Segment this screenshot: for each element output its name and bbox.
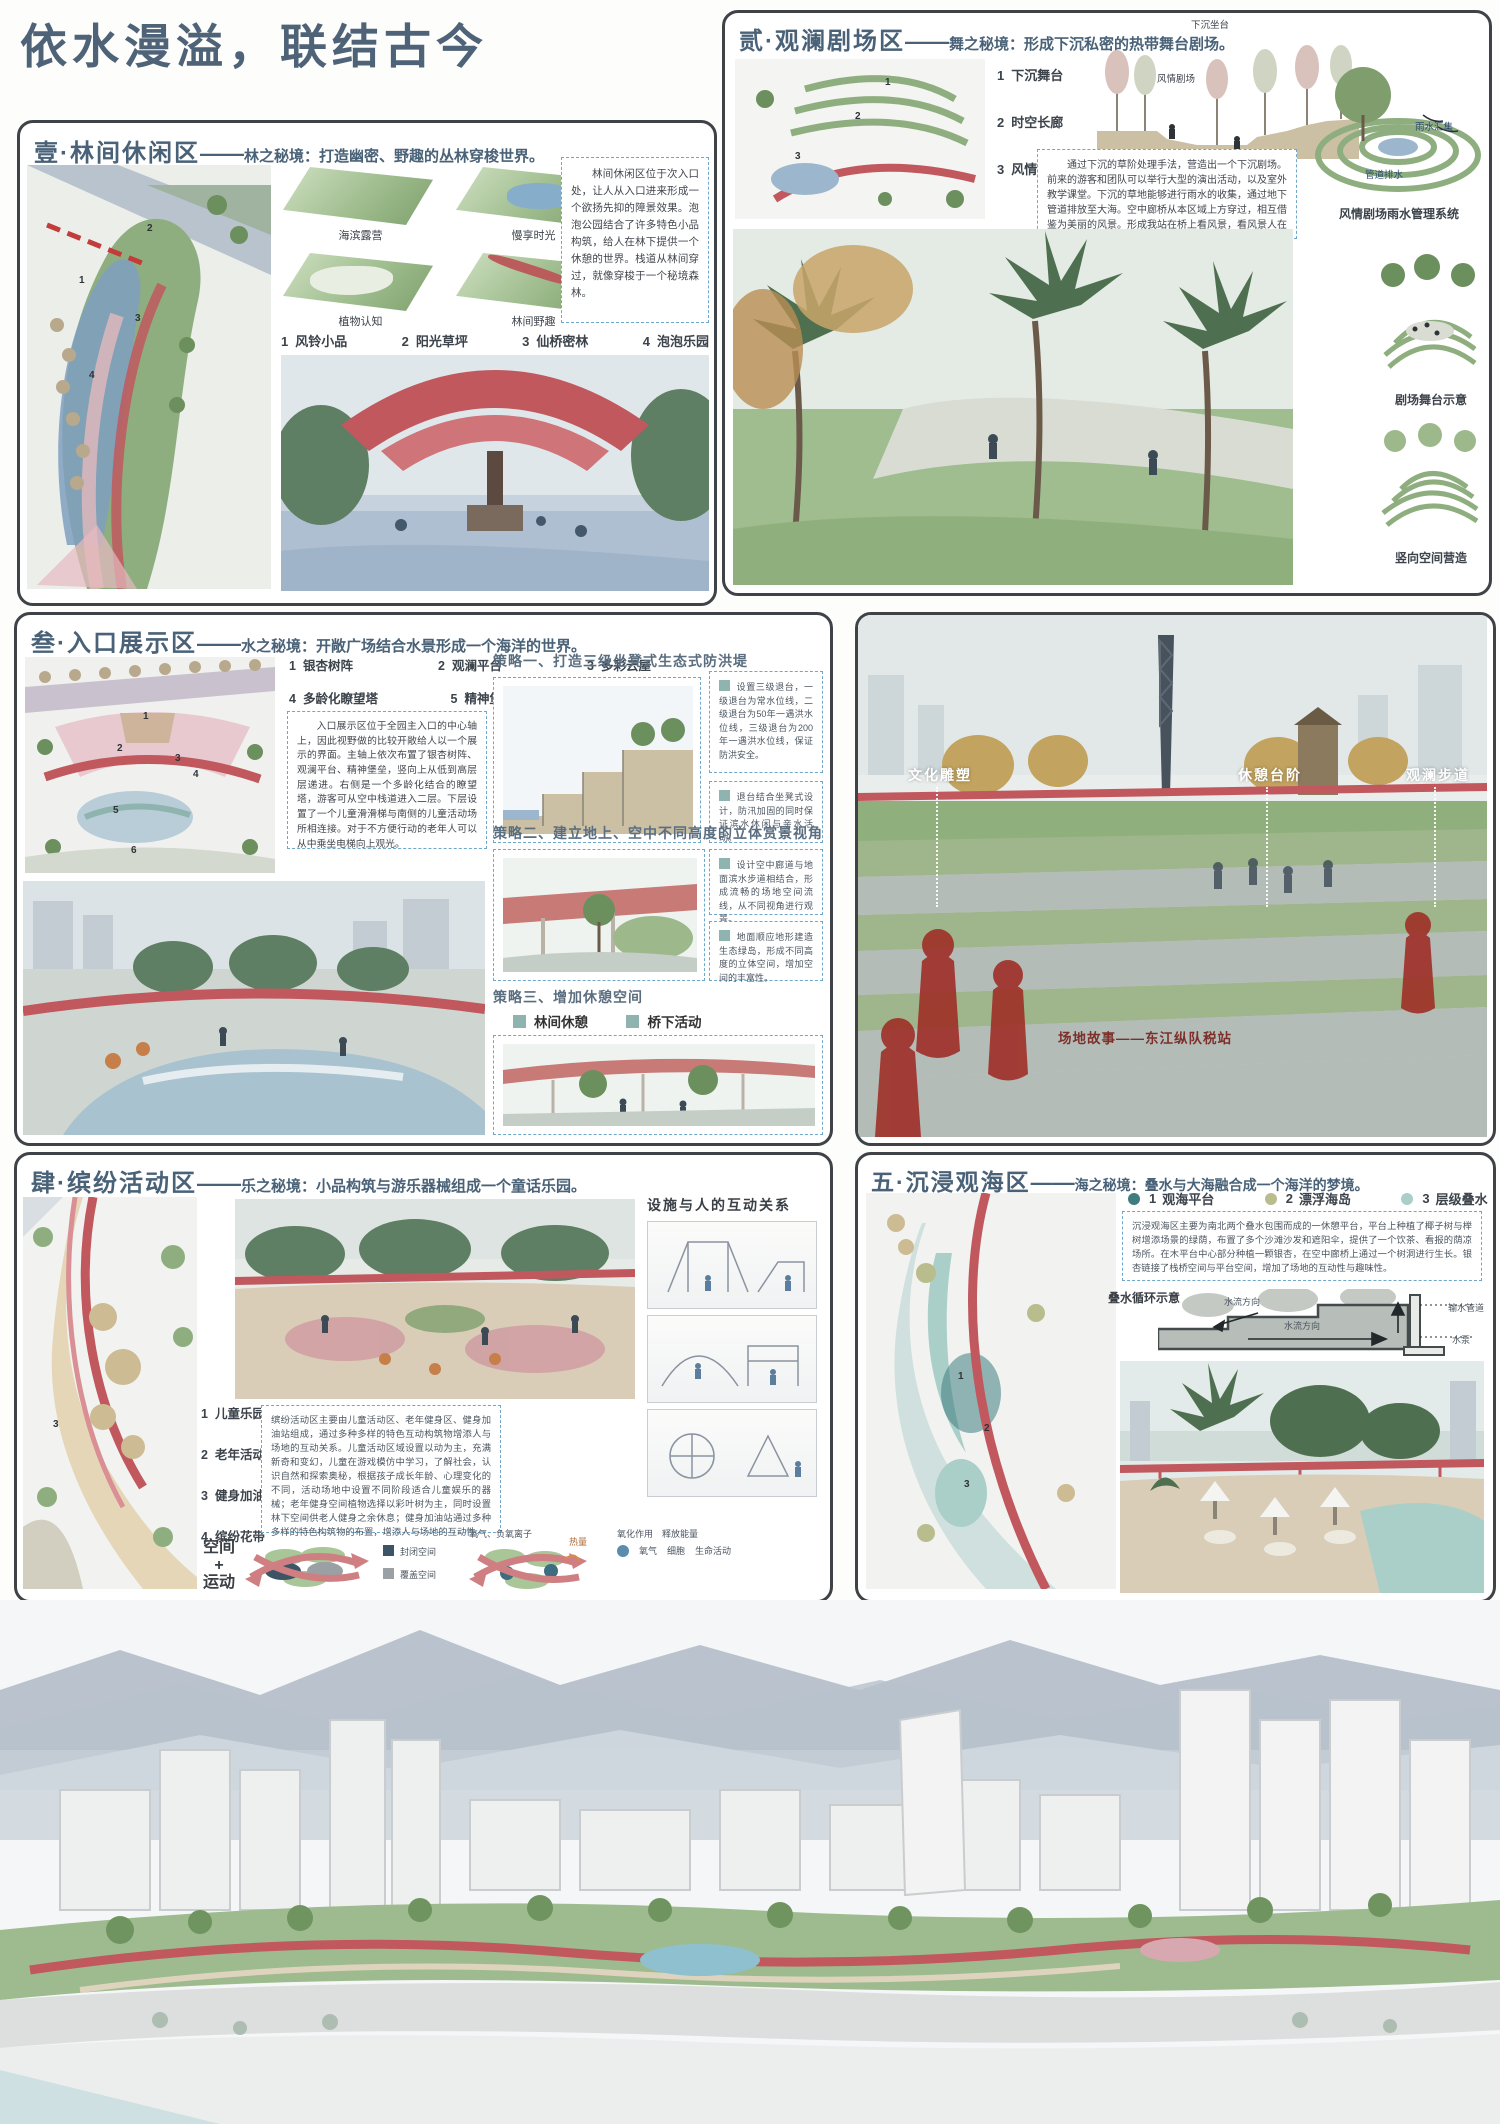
panel6-zone-title: 五·沉浸观海区	[871, 1169, 1031, 1195]
panel1-zone-title: 壹·林间休闲区	[34, 140, 200, 167]
panel2-plan: 1 2 3	[735, 59, 985, 219]
plan1-marker: 2	[147, 223, 153, 234]
thumb-illustration	[283, 167, 433, 225]
legend-dot-icon	[1128, 1193, 1140, 1205]
panel2-zone-title: 贰·观澜剧场区	[739, 28, 905, 55]
label-culture-sculpture: 文化雕塑	[908, 765, 972, 785]
flow-direction-label-2: 水流方向	[1284, 1319, 1320, 1332]
section-label-sunken-seat: 下沉坐台	[1191, 17, 1229, 31]
flow-direction-label-1: 水流方向	[1224, 1295, 1260, 1308]
panel-forest-leisure: 壹·林间休闲区——林之秘境：打造幽密、野趣的丛林穿梭世界。 1	[17, 120, 717, 606]
panel6-description-box: 沉浸观海区主要为南北两个叠水包围而成的一休憩平台，平台上种植了椰子树与榉树增添场…	[1122, 1211, 1482, 1281]
plan5-marker: 3	[53, 1419, 59, 1430]
tag-square-icon	[513, 1015, 526, 1028]
board-title: 依水漫溢，联结古今	[20, 8, 488, 77]
panel2-plan-drawing	[735, 59, 985, 219]
panel5-plan-drawing	[23, 1197, 197, 1589]
site-story-label: 场地故事——东江纵队税站	[1058, 1027, 1232, 1047]
equipment-sketch-1	[647, 1221, 817, 1309]
panel-theater-zone: 贰·观澜剧场区——舞之秘境：形成下沉私密的热带舞台剧场。 1 2 3 1下沉舞台…	[722, 10, 1492, 596]
label-rest-steps: 休憩台阶	[1238, 765, 1302, 785]
strategy2-note-1: 设计空中廊道与地面滨水步道相结合，形成流畅的场地空间流线，从不同视角进行观景。	[709, 849, 823, 915]
leader-line	[1434, 787, 1436, 907]
oxygen-ion-label: 氧气、负氧离子	[469, 1527, 532, 1540]
rest-space-render	[503, 1044, 815, 1126]
water-pump-label: 水泵	[1452, 1333, 1470, 1346]
tag-forest-rest: 林间休憩	[513, 1011, 588, 1031]
legend-dot-icon	[1401, 1193, 1413, 1205]
panel3-main-render	[23, 881, 485, 1135]
strategy1-note-1: 设置三级退台，一级退台为常水位线，二级退台为50年一遇洪水位线，三级退台为200…	[709, 671, 823, 773]
panel3-zone-title: 叁·入口展示区	[31, 630, 197, 657]
panel5-description-box: 缤纷活动区主要由儿童活动区、老年健身区、健身加油站组成，通过多种多样的特色互动构…	[261, 1405, 501, 1533]
panel1-pergola-photo	[281, 355, 709, 591]
panel-entrance-display: 叁·入口展示区——水之秘境：开敞广场结合水景形成一个海洋的世界。 1 2 3 4…	[14, 612, 833, 1146]
thumb-plant-cognition: 植物认知	[279, 249, 442, 329]
thumb-illustration	[283, 253, 433, 311]
panel2-terrace-image	[1375, 417, 1485, 543]
covered-space-swatch	[383, 1568, 394, 1579]
elevated-walk-render	[503, 858, 697, 972]
plan1-marker: 1	[79, 275, 85, 286]
panel5-subtitle: 乐之秘境：小品构筑与游乐器械组成一个童话乐园。	[241, 1178, 586, 1195]
water-pipe-label: 输水管道	[1448, 1301, 1484, 1314]
panel5-activity-photo	[235, 1199, 635, 1399]
site-panorama	[0, 1600, 1500, 2124]
legend-tiered-falls: 3层级叠水	[1401, 1189, 1487, 1208]
heritage-scene-render	[858, 615, 1487, 1137]
tag-under-bridge: 桥下活动	[626, 1011, 701, 1031]
panorama-render	[0, 1600, 1500, 2124]
panel3-plan: 1 2 3 4 5 6	[25, 657, 275, 873]
equipment-sketch-3	[647, 1409, 817, 1497]
rain-label-drain: 管道排水	[1365, 167, 1403, 181]
activity-plaza-render	[235, 1199, 635, 1399]
closed-space-swatch	[383, 1545, 394, 1556]
panel1-master-plan: 1 2 3 4	[27, 165, 271, 589]
panel6-legend: 1观海平台 2漂浮海岛 3层级叠水	[1128, 1189, 1488, 1210]
presentation-board: 依水漫溢，联结古今 壹·林间休闲区——林之秘境：打造幽密、野趣的丛林穿梭世界。	[0, 0, 1500, 2124]
label-viewing-walk: 观澜步道	[1406, 765, 1470, 785]
panel6-plan: 1 2 3	[866, 1193, 1116, 1589]
plan1-marker: 3	[135, 313, 141, 324]
strategy3-title: 策略三、增加休憩空间	[493, 987, 643, 1007]
caption-stage: 剧场舞台示意	[1361, 391, 1500, 408]
oxygen-dot-icon	[617, 1545, 629, 1557]
strategy2-note-2: 地面顺应地形建造生态绿岛，形成不同高度的立体空间，增加空间的丰富性。	[709, 921, 823, 981]
space-motion-ribbon-1	[245, 1541, 369, 1593]
panel5-plan: 3	[23, 1197, 197, 1589]
panel5-zone-title: 肆·缤纷活动区	[31, 1170, 197, 1197]
equipment-sketch-2	[647, 1315, 817, 1403]
oxidation-flow: 氧化作用 释放能量 氧气 细胞 生命活动	[617, 1527, 731, 1557]
caption-vertical-space: 竖向空间营造	[1371, 549, 1491, 566]
section-label-theater: 风情剧场	[1157, 71, 1195, 85]
panel-activity-zone: 肆·缤纷活动区——乐之秘境：小品构筑与游乐器械组成一个童话乐园。 3	[14, 1152, 833, 1603]
caption-rain-system: 风情剧场雨水管理系统	[1315, 205, 1483, 222]
legend-floating-island: 2漂浮海岛	[1265, 1189, 1351, 1208]
entrance-render	[23, 881, 485, 1135]
panel5-header: 肆·缤纷活动区——乐之秘境：小品构筑与游乐器械组成一个童话乐园。	[31, 1163, 586, 1198]
tropical-theater-render	[733, 229, 1293, 585]
leader-line	[1266, 787, 1268, 907]
panel1-description-box: 林间休闲区位于次入口处，让人从入口进来形成一个欲扬先抑的障景效果。泡泡公园结合了…	[561, 157, 709, 323]
tag-square-icon	[626, 1015, 639, 1028]
panel-heritage-render: 文化雕塑 休憩台阶 观澜步道 场地故事——东江纵队税站	[855, 612, 1496, 1146]
falls-section-diagram: 水流方向 水流方向	[1158, 1289, 1482, 1359]
leader-line	[936, 787, 938, 907]
thumb-seaside-camping: 海滨露营	[279, 163, 442, 243]
levee-section	[503, 686, 693, 834]
space-motion-label: 空间 + 运动	[203, 1539, 235, 1592]
legend-ocean-platform: 1观海平台	[1128, 1189, 1214, 1208]
strategy1-section	[493, 677, 701, 843]
panel2-stage-image	[1375, 245, 1485, 385]
panel3-plan-drawing	[25, 657, 275, 873]
panel2-rain-diagram: 雨水汇集 管道排水	[1303, 55, 1485, 203]
pergola-render	[281, 355, 709, 591]
panel3-description-box: 入口展示区位于全园主入口的中心轴上，因此视野做的比较开敞给人以一个展示的界面。主…	[287, 711, 487, 849]
heat-label: 热量	[569, 1535, 587, 1548]
interaction-title: 设施与人的互动关系	[647, 1195, 791, 1215]
panel-ocean-zone: 五·沉浸观海区——海之秘境：叠水与大海融合成一个海洋的梦境。 1 2 3 1观海…	[855, 1152, 1496, 1603]
panel6-beach-render	[1120, 1361, 1484, 1593]
panel1-feature-list: 1风铃小品 2阳光草坪 3仙桥密林 4泡泡乐园	[281, 331, 709, 350]
strategy2-title: 策略二、建立地上、空中不同高度的立体赏景视角	[493, 823, 823, 843]
strategy1-title: 策略一、打造三级坐凳式生态式防洪堤	[493, 651, 748, 671]
panel6-plan-drawing	[866, 1193, 1116, 1589]
strategy3-image	[493, 1035, 823, 1135]
legend-dot-icon	[1265, 1193, 1277, 1205]
plan1-marker: 4	[89, 370, 95, 381]
panel2-main-render	[733, 229, 1293, 585]
space-legend: 封闭空间 覆盖空间	[383, 1545, 436, 1581]
space-motion-ribbon-2	[469, 1543, 587, 1595]
strategy2-image	[493, 849, 705, 981]
rain-label-collect: 雨水汇集	[1415, 119, 1453, 133]
panel2-description-box: 通过下沉的草阶处理手法，营造出一个下沉剧场。前来的游客和团队可以举行大型的演出活…	[1037, 149, 1297, 239]
beach-club-render	[1120, 1361, 1484, 1593]
